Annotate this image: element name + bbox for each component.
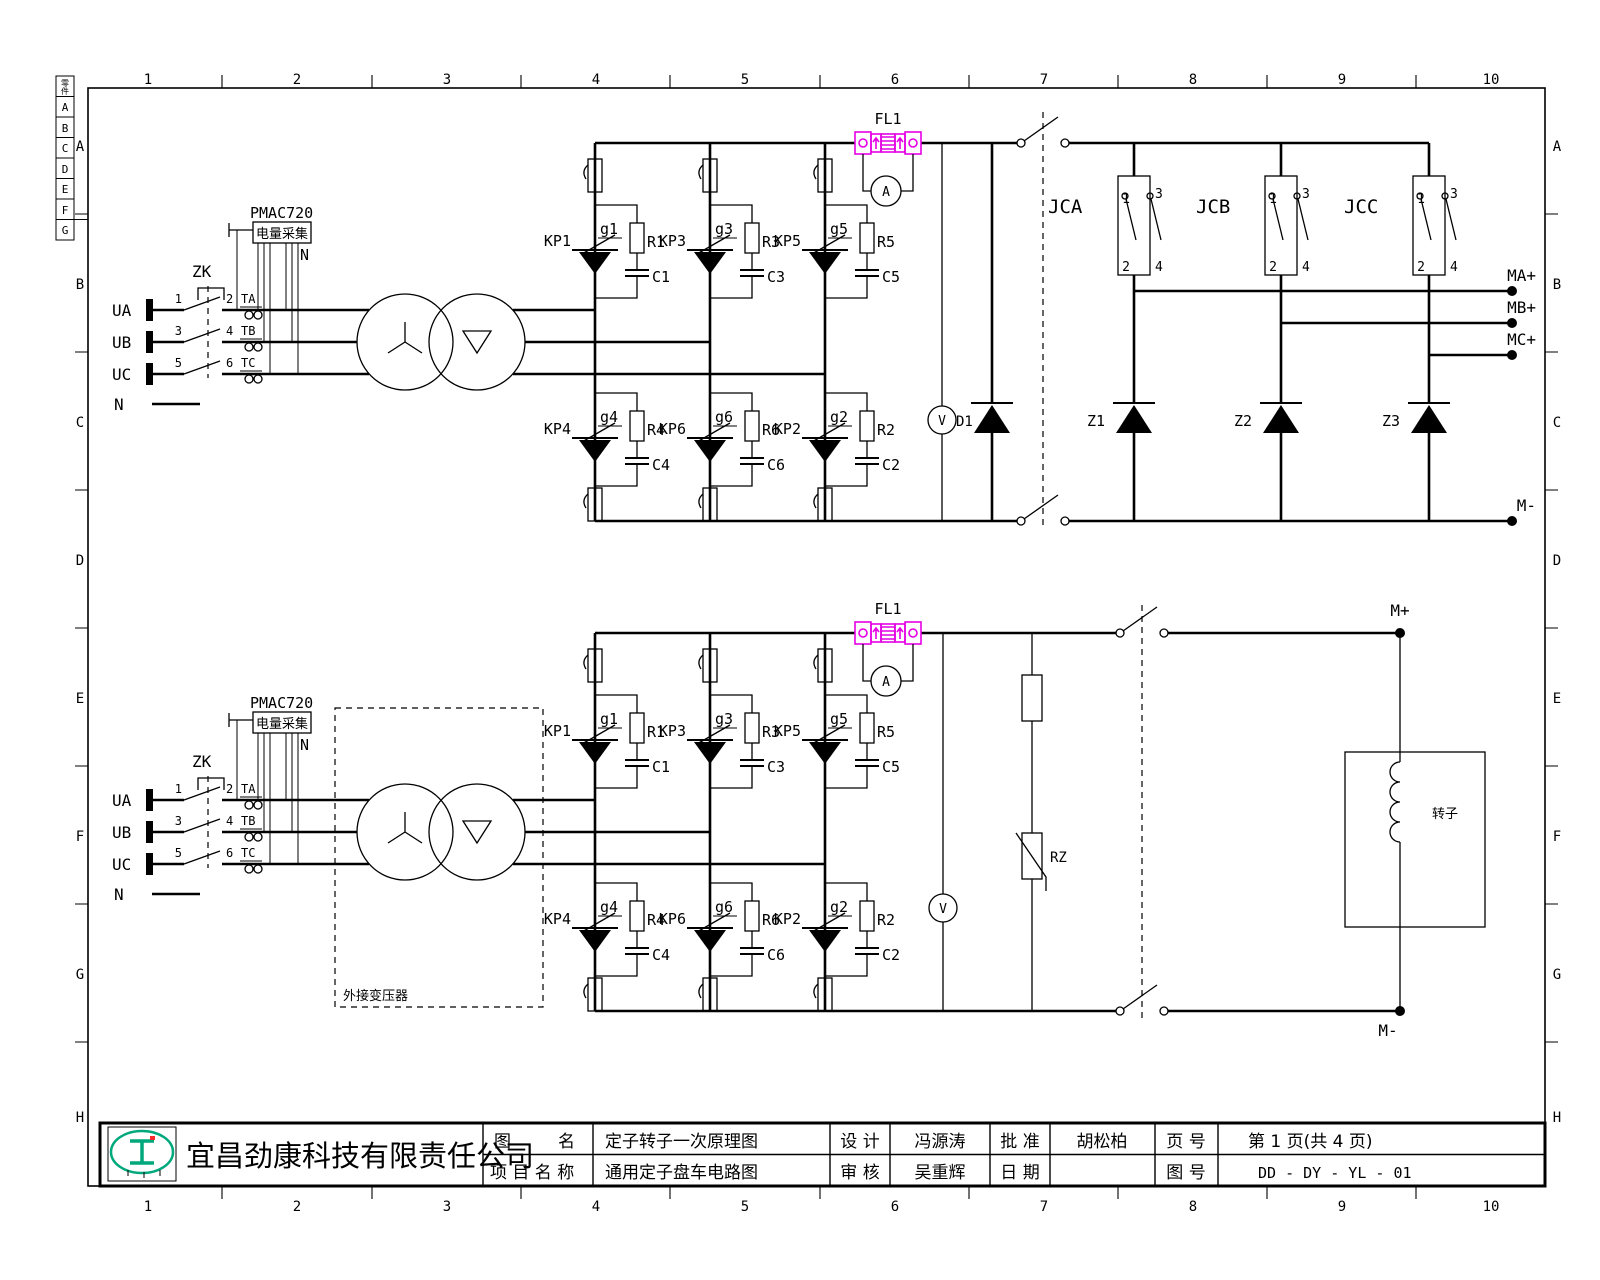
diode-label: D1 bbox=[956, 414, 973, 430]
pmac-box-label: 电量采集 bbox=[256, 226, 308, 242]
pmac-label: PMAC720 bbox=[250, 694, 313, 712]
cap-label: C1 bbox=[652, 268, 670, 286]
contactor-pin: 2 bbox=[1269, 260, 1277, 275]
phase-label: UB bbox=[112, 823, 131, 842]
ammeter-label: A bbox=[882, 185, 890, 200]
res-label: R5 bbox=[877, 233, 895, 251]
row-label-left: B bbox=[76, 277, 84, 293]
thy-label: KP3 bbox=[659, 232, 686, 250]
gate-label: g4 bbox=[600, 408, 618, 426]
res-label: R5 bbox=[877, 723, 895, 741]
pin-label: 6 bbox=[226, 846, 233, 860]
row-label-left: F bbox=[76, 829, 84, 845]
col-label-bottom: 5 bbox=[741, 1199, 749, 1215]
shunt-label: FL1 bbox=[874, 600, 901, 618]
col-label-top: 6 bbox=[891, 72, 899, 88]
reviewer-name: 吴重辉 bbox=[915, 1163, 966, 1183]
row-label-right: H bbox=[1553, 1110, 1561, 1126]
thy-label: KP5 bbox=[774, 232, 801, 250]
voltmeter-label: V bbox=[938, 414, 946, 429]
contactor-pin: 2 bbox=[1417, 260, 1425, 275]
col-label-top: 5 bbox=[741, 72, 749, 88]
page-value: 第 1 页(共 4 页) bbox=[1248, 1132, 1373, 1152]
shunt-fl1 bbox=[855, 132, 921, 154]
pmac-box-label: 电量采集 bbox=[256, 716, 308, 732]
gate-label: g1 bbox=[600, 710, 618, 728]
col-label-top: 3 bbox=[443, 72, 451, 88]
cap-label: C1 bbox=[652, 758, 670, 776]
title-block: 宜昌劲康科技有限责任公司 图 名 项 目 名 称 定子转子一次原理图 通用定子盘… bbox=[100, 1123, 1545, 1186]
breaker-label: ZK bbox=[192, 262, 212, 281]
pin-label: 5 bbox=[175, 846, 182, 860]
row-label-right: B bbox=[1553, 277, 1561, 293]
zone-legend-head: 零件 bbox=[61, 79, 70, 96]
ct-label: TA bbox=[241, 292, 256, 306]
col-label-top: 9 bbox=[1338, 72, 1346, 88]
fig-name: 定子转子一次原理图 bbox=[605, 1132, 758, 1152]
cap-label: C3 bbox=[767, 758, 785, 776]
zone-legend-row: D bbox=[62, 163, 69, 176]
thy-label: KP4 bbox=[544, 420, 571, 438]
dwgno-value: DD - DY - YL - 01 bbox=[1258, 1164, 1412, 1182]
row-label-right: E bbox=[1553, 691, 1561, 707]
zone-legend-row: G bbox=[62, 224, 69, 237]
dwgno-label: 图 号 bbox=[1166, 1163, 1205, 1183]
res-label: R2 bbox=[877, 911, 895, 929]
external-transformer-label: 外接变压器 bbox=[343, 988, 408, 1004]
col-label-top: 1 bbox=[144, 72, 152, 88]
contactor-pin: 1 bbox=[1122, 192, 1130, 207]
output-label: MA+ bbox=[1507, 266, 1536, 285]
row-label-left: D bbox=[76, 553, 84, 569]
thy-label: KP6 bbox=[659, 420, 686, 438]
rotor-winding-label: 转子 bbox=[1432, 807, 1458, 822]
gate-label: g3 bbox=[715, 710, 733, 728]
terminal-ma bbox=[1507, 286, 1517, 296]
zone-legend-row: F bbox=[62, 204, 69, 217]
pin-label: 1 bbox=[175, 782, 182, 796]
contactor-pin: 3 bbox=[1302, 187, 1310, 202]
col-label-bottom: 3 bbox=[443, 1199, 451, 1215]
approve-label: 批 准 bbox=[1000, 1132, 1039, 1152]
varistor-label: RZ bbox=[1050, 850, 1067, 866]
design-label: 设 计 bbox=[840, 1132, 879, 1152]
ct-label: TC bbox=[241, 846, 255, 860]
page-label: 页 号 bbox=[1166, 1132, 1205, 1152]
output-label: M- bbox=[1517, 496, 1536, 515]
col-label-top: 8 bbox=[1189, 72, 1197, 88]
thy-label: KP1 bbox=[544, 232, 571, 250]
phase-label: UB bbox=[112, 333, 131, 352]
col-label-top: 4 bbox=[592, 72, 600, 88]
cap-label: C2 bbox=[882, 456, 900, 474]
diode-z3 bbox=[1408, 403, 1450, 433]
diode-z2 bbox=[1260, 403, 1302, 433]
ct-label: TB bbox=[241, 324, 255, 338]
zone-legend-row: A bbox=[62, 101, 69, 114]
col-label-bottom: 8 bbox=[1189, 1199, 1197, 1215]
neutral-label: N bbox=[114, 395, 124, 414]
cad-drawing-sheet: 1 2 3 4 5 6 7 8 9 10 1 2 3 4 5 6 7 8 9 1… bbox=[0, 0, 1600, 1280]
fig-label: 名 bbox=[558, 1132, 575, 1152]
gate-label: g5 bbox=[830, 710, 848, 728]
thy-label: KP6 bbox=[659, 910, 686, 928]
gate-label: g2 bbox=[830, 408, 848, 426]
pin-label: 5 bbox=[175, 356, 182, 370]
cap-label: C4 bbox=[652, 456, 670, 474]
pin-label: 4 bbox=[226, 814, 233, 828]
disconnector-bottom bbox=[1116, 985, 1168, 1015]
cap-label: C6 bbox=[767, 456, 785, 474]
ct-label: TC bbox=[241, 356, 255, 370]
col-label-top: 10 bbox=[1483, 72, 1500, 88]
row-label-right: F bbox=[1553, 829, 1561, 845]
review-label: 审 核 bbox=[840, 1163, 879, 1183]
phase-label: UC bbox=[112, 365, 131, 384]
col-label-bottom: 10 bbox=[1483, 1199, 1500, 1215]
gate-label: g2 bbox=[830, 898, 848, 916]
pin-label: 3 bbox=[175, 814, 182, 828]
voltmeter-label: V bbox=[939, 902, 947, 917]
diode-z1 bbox=[1113, 403, 1155, 433]
rotor-labels: UA UB UC N 1 3 5 2 4 6 ZK TA TB TC PMAC7… bbox=[112, 600, 1458, 1040]
zone-legend-row: E bbox=[62, 183, 69, 196]
thy-label: KP2 bbox=[774, 420, 801, 438]
external-transformer-box bbox=[335, 708, 543, 1007]
terminal-mneg bbox=[1507, 516, 1517, 526]
shunt-label: FL1 bbox=[874, 110, 901, 128]
row-label-left: G bbox=[76, 967, 84, 983]
row-label-left: A bbox=[76, 139, 85, 155]
stator-circuit bbox=[146, 112, 1517, 530]
ammeter-label: A bbox=[882, 675, 890, 690]
zone-legend: 零件 A B C D E F G bbox=[56, 76, 88, 240]
pin-label: 3 bbox=[175, 324, 182, 338]
pmac-n-label: N bbox=[300, 736, 309, 754]
thy-label: KP3 bbox=[659, 722, 686, 740]
row-label-left: C bbox=[76, 415, 84, 431]
col-label-bottom: 2 bbox=[293, 1199, 301, 1215]
contactor-label: JCB bbox=[1196, 196, 1230, 218]
output-label: MC+ bbox=[1507, 330, 1536, 349]
contactor-pin: 3 bbox=[1450, 187, 1458, 202]
date-label: 日 期 bbox=[1000, 1163, 1039, 1183]
contactor-label: JCA bbox=[1048, 196, 1083, 218]
pin-label: 4 bbox=[226, 324, 233, 338]
row-label-right: A bbox=[1553, 139, 1562, 155]
phase-label: UA bbox=[112, 301, 132, 320]
thy-label: KP2 bbox=[774, 910, 801, 928]
terminal-mb bbox=[1507, 318, 1517, 328]
terminal-mc bbox=[1507, 350, 1517, 360]
cap-label: C4 bbox=[652, 946, 670, 964]
approver-name: 胡松柏 bbox=[1077, 1132, 1128, 1152]
pmac-label: PMAC720 bbox=[250, 204, 313, 222]
pin-label: 2 bbox=[226, 782, 233, 796]
col-label-bottom: 6 bbox=[891, 1199, 899, 1215]
logo-red-dot bbox=[150, 1136, 155, 1140]
row-label-right: C bbox=[1553, 415, 1561, 431]
mpos-label: M+ bbox=[1390, 601, 1409, 620]
cap-label: C6 bbox=[767, 946, 785, 964]
thy-label: KP4 bbox=[544, 910, 571, 928]
contactor-pin: 2 bbox=[1122, 260, 1130, 275]
gate-label: g5 bbox=[830, 220, 848, 238]
zone-legend-row: B bbox=[62, 122, 69, 135]
row-label-left: E bbox=[76, 691, 84, 707]
zdiode-label: Z1 bbox=[1087, 412, 1105, 430]
cap-label: C3 bbox=[767, 268, 785, 286]
breaker-label: ZK bbox=[192, 752, 212, 771]
contactor-pin: 1 bbox=[1269, 192, 1277, 207]
zdiode-label: Z3 bbox=[1382, 412, 1400, 430]
diode-d1 bbox=[971, 403, 1013, 433]
col-label-top: 7 bbox=[1040, 72, 1048, 88]
contactor-pin: 4 bbox=[1302, 260, 1310, 275]
schematic-canvas: 1 2 3 4 5 6 7 8 9 10 1 2 3 4 5 6 7 8 9 1… bbox=[0, 0, 1600, 1280]
res-label: R2 bbox=[877, 421, 895, 439]
phase-label: UA bbox=[112, 791, 132, 810]
designer-name: 冯源涛 bbox=[915, 1132, 966, 1152]
col-label-bottom: 1 bbox=[144, 1199, 152, 1215]
company-logo bbox=[108, 1127, 176, 1181]
contactor-pin: 4 bbox=[1450, 260, 1458, 275]
company-name: 宜昌劲康科技有限责任公司 bbox=[186, 1139, 534, 1173]
contactor-pin: 1 bbox=[1417, 192, 1425, 207]
proj-label: 项 目 名 称 bbox=[490, 1163, 574, 1183]
fig-label: 图 bbox=[494, 1132, 511, 1152]
contactor-pin: 3 bbox=[1155, 187, 1163, 202]
cap-label: C2 bbox=[882, 946, 900, 964]
disconnector-top bbox=[1017, 117, 1069, 147]
shunt-fl1 bbox=[855, 622, 921, 644]
contactor-label: JCC bbox=[1344, 196, 1378, 218]
pin-label: 1 bbox=[175, 292, 182, 306]
thy-label: KP1 bbox=[544, 722, 571, 740]
row-label-right: G bbox=[1553, 967, 1561, 983]
row-label-left: H bbox=[76, 1110, 84, 1126]
rotor-circuit bbox=[146, 605, 1485, 1019]
col-label-bottom: 7 bbox=[1040, 1199, 1048, 1215]
gate-label: g1 bbox=[600, 220, 618, 238]
row-label-right: D bbox=[1553, 553, 1561, 569]
varistor-branch bbox=[1016, 633, 1046, 1011]
thy-label: KP5 bbox=[774, 722, 801, 740]
neutral-label: N bbox=[114, 885, 124, 904]
col-label-top: 2 bbox=[293, 72, 301, 88]
ct-label: TA bbox=[241, 782, 256, 796]
ct-label: TB bbox=[241, 814, 255, 828]
contactor-pin: 4 bbox=[1155, 260, 1163, 275]
gate-label: g6 bbox=[715, 898, 733, 916]
cap-label: C5 bbox=[882, 268, 900, 286]
cap-label: C5 bbox=[882, 758, 900, 776]
gate-label: g4 bbox=[600, 898, 618, 916]
col-label-bottom: 4 bbox=[592, 1199, 600, 1215]
zdiode-label: Z2 bbox=[1234, 412, 1252, 430]
rotor-winding bbox=[1345, 628, 1485, 1016]
proj-name: 通用定子盘车电路图 bbox=[605, 1163, 758, 1183]
mneg-label: M- bbox=[1378, 1021, 1397, 1040]
col-label-bottom: 9 bbox=[1338, 1199, 1346, 1215]
pin-label: 6 bbox=[226, 356, 233, 370]
gate-label: g3 bbox=[715, 220, 733, 238]
pmac-n-label: N bbox=[300, 246, 309, 264]
phase-label: UC bbox=[112, 855, 131, 874]
pin-label: 2 bbox=[226, 292, 233, 306]
gate-label: g6 bbox=[715, 408, 733, 426]
output-label: MB+ bbox=[1507, 298, 1536, 317]
zone-legend-row: C bbox=[62, 142, 69, 155]
